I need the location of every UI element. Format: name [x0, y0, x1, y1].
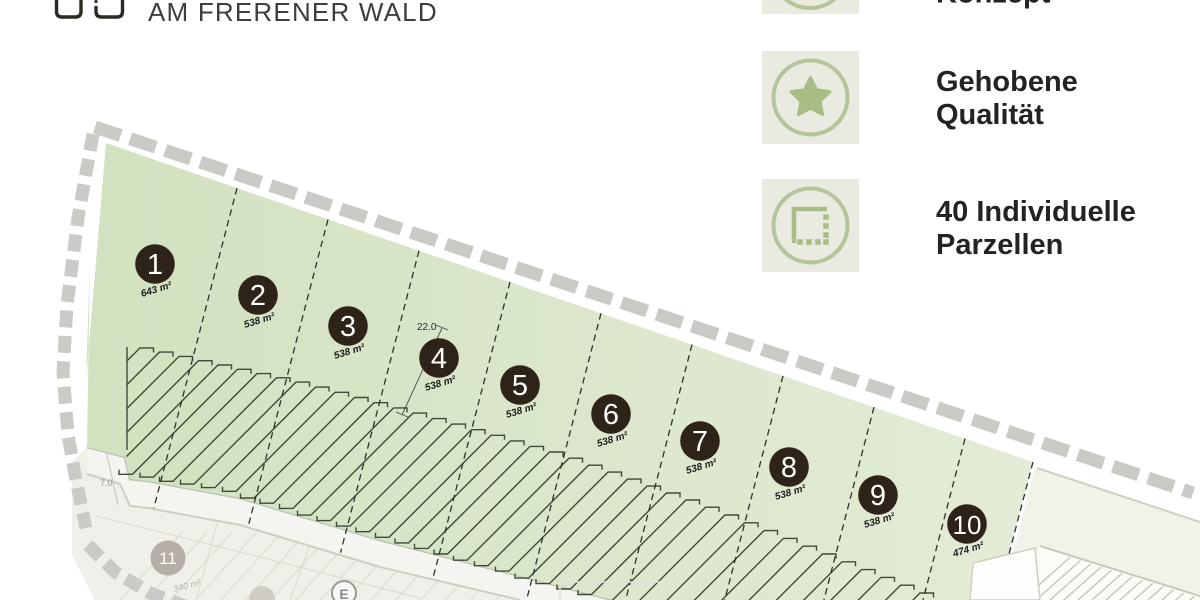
- svg-text:6: 6: [603, 399, 619, 431]
- svg-text:9: 9: [870, 480, 886, 512]
- svg-text:7.0: 7.0: [100, 478, 113, 488]
- svg-text:3: 3: [340, 311, 356, 343]
- svg-text:10: 10: [953, 510, 982, 540]
- svg-text:2: 2: [250, 280, 266, 312]
- svg-text:Qualität: Qualität: [936, 99, 1044, 131]
- svg-text:8: 8: [781, 452, 797, 484]
- svg-text:40 Individuelle: 40 Individuelle: [936, 196, 1136, 228]
- svg-text:E: E: [339, 586, 348, 600]
- svg-text:Konzept: Konzept: [936, 0, 1051, 10]
- svg-text:1: 1: [147, 249, 163, 281]
- svg-text:4: 4: [431, 343, 447, 375]
- svg-text:5: 5: [512, 370, 528, 402]
- svg-text:11: 11: [159, 549, 177, 568]
- svg-text:7: 7: [692, 426, 708, 458]
- svg-text:AM FRERENER WALD: AM FRERENER WALD: [148, 0, 438, 27]
- svg-text:Parzellen: Parzellen: [936, 229, 1063, 261]
- svg-text:22.0: 22.0: [417, 322, 437, 333]
- svg-text:Gehobene: Gehobene: [936, 66, 1078, 98]
